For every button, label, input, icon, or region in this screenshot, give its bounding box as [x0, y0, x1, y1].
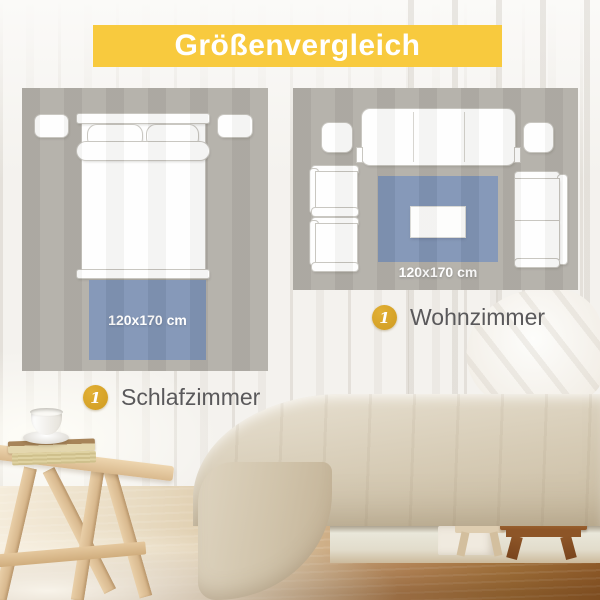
bedroom-caption: 1 Schlafzimmer [83, 384, 260, 411]
armrest [312, 208, 358, 216]
chair-seat [316, 172, 357, 210]
side-table-icon [322, 123, 352, 152]
blanket-fold-icon [77, 142, 209, 160]
livingroom-diagram-panel: 120x170 cm [293, 88, 578, 290]
rug-swatch-livingroom [378, 176, 498, 262]
number-badge: 1 [83, 385, 108, 410]
size-comparison-graphic: Größenvergleich 120x170 cm [0, 0, 600, 600]
armrest [312, 263, 358, 271]
livingroom-label: Wohnzimmer [410, 304, 545, 331]
armrest [515, 259, 559, 267]
armchair-icon [310, 218, 360, 271]
bed-footboard-icon [77, 270, 209, 278]
bed-headboard-icon [77, 114, 209, 123]
bedroom-diagram-panel: 120x170 cm [22, 88, 268, 371]
side-table-icon [524, 123, 553, 152]
livingroom-caption: 1 Wohnzimmer [372, 304, 545, 331]
sofa-icon [362, 109, 515, 165]
armchair-icon [310, 166, 360, 216]
loveseat-back [558, 175, 567, 264]
rug-size-label: 120x170 cm [378, 264, 498, 280]
page-title: Größenvergleich [175, 29, 421, 63]
number-badge: 1 [372, 305, 397, 330]
sofa-cushion-divider [413, 112, 414, 162]
sofa-cushion-divider [464, 112, 465, 162]
nightstand-icon [35, 115, 68, 137]
loveseat-seat [515, 179, 559, 220]
chair-seat [316, 224, 357, 265]
loveseat-seat [515, 221, 559, 259]
bedroom-label: Schlafzimmer [121, 384, 260, 411]
rug-swatch-bedroom: 120x170 cm [89, 280, 206, 360]
title-banner: Größenvergleich [93, 25, 502, 67]
loveseat-icon [515, 172, 567, 267]
coffee-table-icon [411, 207, 465, 237]
rug-size-label: 120x170 cm [108, 312, 187, 328]
nightstand-icon [218, 115, 252, 137]
